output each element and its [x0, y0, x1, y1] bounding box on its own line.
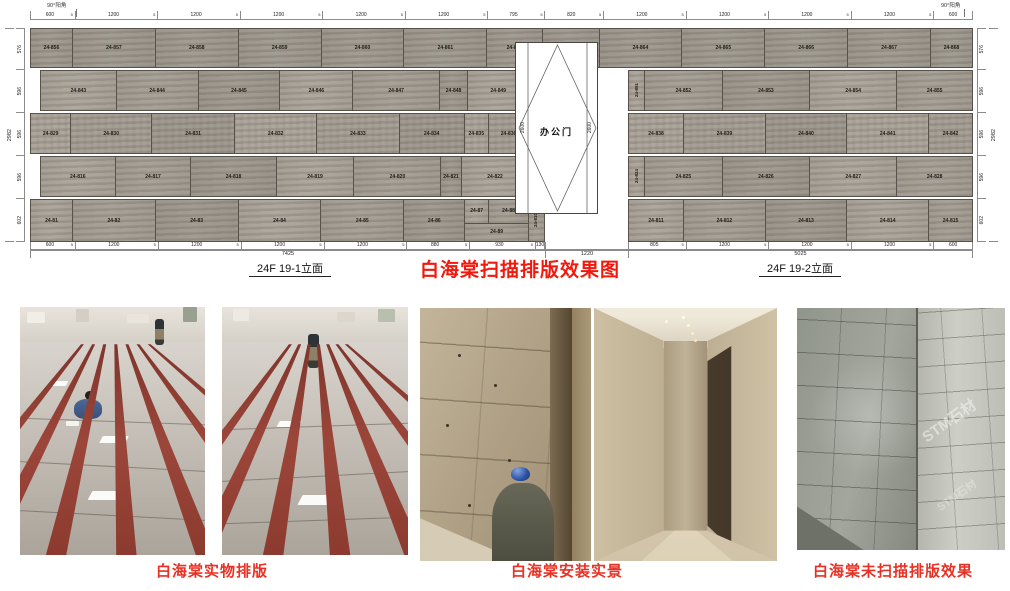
stone-panel: 24-843 [41, 71, 116, 110]
door-label: 办公门 [516, 125, 597, 138]
panel-number: 24-819 [307, 174, 323, 180]
row-height-dimension: 596 [978, 69, 986, 112]
stone-panel: 24-861 [404, 29, 486, 67]
panel-number: 24-838 [648, 131, 664, 137]
panel-number: 24-824 [634, 169, 640, 183]
panel-number: 24-815 [943, 218, 959, 224]
stone-panel: 24-85 [321, 200, 403, 241]
wall-row: 24-81624-81724-81824-81924-82024-82124-8… [30, 156, 973, 197]
polishing-cloth [66, 421, 79, 426]
panel-number: 24-89 [490, 229, 503, 235]
dimension-label: 1200 [157, 11, 234, 19]
stone-panel: 24-841 [847, 114, 928, 153]
photo-factory-layout-1 [20, 307, 205, 555]
panel-number: 24-812 [717, 218, 733, 224]
total-height-value: 2982 [991, 129, 997, 141]
ceiling-lights [682, 316, 685, 319]
panel-number: 24-855 [927, 88, 943, 94]
dimension-label: 1200 [603, 11, 680, 19]
row-height-dimension: 602 [16, 198, 24, 242]
photo-factory-layout-2 [222, 307, 408, 555]
panel-number: 24-842 [943, 131, 959, 137]
elevation-label-right-text: 24F 19-2立面 [759, 263, 841, 277]
stone-panel: 24-860 [322, 29, 404, 67]
stone-panel: 24-814 [847, 200, 928, 241]
panel-number: 24-854 [845, 88, 861, 94]
corner-angle-label-right: 90°阳角 [941, 1, 960, 9]
panel-number: 24-865 [716, 45, 732, 51]
stone-panel: 24-838 [629, 114, 683, 153]
back-wall [664, 341, 708, 531]
dimension-label: 1200 [75, 11, 152, 19]
top-dimension-row: 6005120051200512005120051200579558205120… [30, 11, 973, 20]
page-title: 白海棠扫描排版效果图 [370, 255, 670, 282]
stone-panel: 24-833 [317, 114, 398, 153]
panel-number: 24-846 [309, 88, 325, 94]
stone-panel: 24-842 [929, 114, 972, 153]
elevation-label-right: 24F 19-2立面 [690, 260, 910, 276]
stone-panel: 24-834 [400, 114, 464, 153]
stone-panel: 24-89 [465, 224, 528, 241]
panel-number: 24-864 [633, 45, 649, 51]
stone-panel: 24-83 [156, 200, 238, 241]
stone-panel: 24-847 [353, 71, 438, 110]
page: 90°阳角 90°阳角 6005120051200512005120051200… [0, 0, 1010, 591]
total-height-left: 2982 [5, 28, 14, 242]
panel-number: 24-86 [428, 218, 441, 224]
dimension-label: 1200 [851, 11, 928, 19]
stone-panel: 24-811 [629, 200, 683, 241]
stone-panel: 24-857 [73, 29, 155, 67]
stone-panel: 24-848 [440, 71, 467, 110]
panel-number: 24-841 [880, 131, 896, 137]
panel-number: 24-845 [231, 88, 247, 94]
anchor-holes [458, 354, 461, 357]
office-door: 2600 2600 办公门 [515, 42, 598, 214]
stone-panel: 24-858 [156, 29, 238, 67]
dimension-label: 820 [544, 11, 597, 19]
dimension-label: 795 [487, 11, 538, 19]
stone-panel: 24-840 [766, 114, 847, 153]
panel-number: 24-840 [798, 131, 814, 137]
panel-number: 24-859 [272, 45, 288, 51]
panel-number: 24-835 [469, 131, 485, 137]
panel-number: 24-868 [944, 45, 960, 51]
panel-number: 24-844 [149, 88, 165, 94]
elevation-label-left: 24F 19-1立面 [180, 260, 400, 276]
panel-number: 24-822 [487, 174, 503, 180]
elevation-label-left-text: 24F 19-1立面 [249, 263, 331, 277]
stone-panel: 24-816 [41, 157, 115, 196]
dimension-label: 1200 [405, 11, 482, 19]
panel-number: 24-833 [350, 131, 366, 137]
slab-floor [20, 342, 205, 555]
dimension-label: 1200 [240, 11, 317, 19]
left-dimension-column: 576596596596602 [16, 28, 25, 242]
dimension-label: 600 [30, 11, 69, 19]
panel-number: 24-817 [145, 174, 161, 180]
row-height-dimension: 602 [978, 198, 986, 242]
panel-number: 24-828 [927, 174, 943, 180]
stone-panel: 24-864 [600, 29, 682, 67]
stone-panel: 24-846 [280, 71, 352, 110]
panel-number: 24-831 [185, 131, 201, 137]
stone-panel: 24-830 [71, 114, 151, 153]
photo-unscanned-wall: STM石材 STM石材 [797, 308, 1005, 550]
wall-row: 24-84324-84424-84524-84624-84724-84824-8… [30, 70, 973, 111]
factory-background [20, 307, 205, 347]
panel-number: 24-87 [470, 208, 483, 214]
crate [378, 309, 395, 322]
stone-panel: 24-815 [929, 200, 972, 241]
stone-panel: 24-819 [277, 157, 354, 196]
stone-panel: 24-867 [848, 29, 930, 67]
dimension-label: 1200 [768, 11, 845, 19]
panel-number: 24-821 [443, 174, 459, 180]
stone-panel: 24-821 [441, 157, 460, 196]
stone-panel: 24-86 [404, 200, 464, 241]
stone-panel: 24-865 [682, 29, 764, 67]
panel-number: 24-85 [356, 218, 369, 224]
panel-number: 24-839 [717, 131, 733, 137]
safety-helmet [511, 467, 530, 481]
total-height-value: 2982 [7, 129, 13, 141]
panel-number: 24-856 [44, 45, 60, 51]
panel-number: 24-820 [390, 174, 406, 180]
stone-panel: 24-845 [199, 71, 280, 110]
panel-number: 24-851 [634, 83, 640, 97]
row-height-dimension: 576 [16, 28, 24, 69]
stone-panel: 24-813 [766, 200, 847, 241]
wall-row: 24-8124-8224-8324-8424-8524-8624-8724-88… [30, 199, 973, 242]
photo-installation-corridor [594, 308, 777, 561]
caption-unscanned: 白海棠未扫描排版效果 [743, 560, 1010, 581]
panel-number: 24-843 [71, 88, 87, 94]
stone-panel: 24-828 [897, 157, 972, 196]
elevation-drawing: 24-85624-85724-85824-85924-86024-86124-8… [30, 28, 973, 244]
wall-row: 24-82924-83024-83124-83224-83324-83424-8… [30, 113, 973, 154]
stone-panel: 24-852 [645, 71, 722, 110]
panel-number: 24-813 [798, 218, 814, 224]
wall-row: 24-85624-85724-85824-85924-86024-86124-8… [30, 28, 973, 68]
stone-panel: 24-855 [897, 71, 972, 110]
worker-standing [155, 319, 164, 345]
panel-number: 24-866 [798, 45, 814, 51]
stone-panel: 24-826 [723, 157, 809, 196]
panel-number: 24-834 [424, 131, 440, 137]
panel-number: 24-867 [881, 45, 897, 51]
stone-panel: 24-82 [73, 200, 155, 241]
stone-panel: 24-827 [810, 157, 896, 196]
corner-angle-label-left: 90°阳角 [47, 1, 66, 9]
panel-number: 24-81 [45, 218, 58, 224]
stone-panel: 24-851 [629, 71, 644, 110]
row-height-dimension: 596 [978, 112, 986, 155]
panel-number: 24-829 [43, 131, 59, 137]
stone-panel: 24-868 [931, 29, 972, 67]
panel-number: 24-852 [676, 88, 692, 94]
stone-panel: 24-831 [152, 114, 234, 153]
row-height-dimension: 596 [16, 155, 24, 198]
right-dimension-column: 576596596596602 [977, 28, 986, 242]
dimension-label: 1200 [686, 11, 763, 19]
panel-number: 24-82 [107, 218, 120, 224]
row-height-dimension: 596 [16, 112, 24, 155]
crate [76, 309, 89, 322]
crate [233, 309, 249, 321]
stone-panel: 24-818 [191, 157, 275, 196]
panel-number: 24-847 [388, 88, 404, 94]
panel-number: 24-848 [446, 88, 462, 94]
stone-panel: 24-832 [235, 114, 316, 153]
stone-panel: 24-844 [117, 71, 198, 110]
stone-panel: 24-820 [354, 157, 440, 196]
stone-panel: 24-81 [31, 200, 72, 241]
caption-physical-layout: 白海棠实物排版 [62, 560, 362, 581]
panel-number: 24-814 [880, 218, 896, 224]
stone-panel: 24-859 [239, 29, 321, 67]
panel-number: 24-860 [355, 45, 371, 51]
crate [183, 307, 197, 322]
stone-panel: 24-812 [684, 200, 765, 241]
stone-panel: 24-854 [810, 71, 896, 110]
panel-number: 24-849 [491, 88, 507, 94]
panel-number: 24-84 [273, 218, 286, 224]
panel-number: 24-811 [648, 218, 663, 224]
panel-number: 24-825 [676, 174, 692, 180]
side-wall [572, 308, 591, 561]
stone-panel: 24-839 [684, 114, 765, 153]
panel-number: 24-88 [502, 208, 515, 214]
total-right-wall: 5025 [628, 250, 973, 258]
total-height-right: 2982 [989, 28, 998, 242]
caption-installation: 白海棠安装实景 [417, 560, 717, 581]
stone-panel: 24-856 [31, 29, 72, 67]
panel-number: 24-830 [103, 131, 119, 137]
stone-panel: 24-829 [31, 114, 70, 153]
photo-installation-wall [420, 308, 591, 561]
panel-number: 24-858 [189, 45, 205, 51]
panel-number: 24-827 [845, 174, 861, 180]
panel-number: 24-826 [758, 174, 774, 180]
stone-panel: 24-84 [239, 200, 321, 241]
stone-panel: 24-817 [116, 157, 191, 196]
row-height-dimension: 576 [978, 28, 986, 69]
panel-number: 24-836 [501, 131, 517, 137]
panel-number: 24-816 [70, 174, 86, 180]
panel-number: 24-853 [758, 88, 774, 94]
dimension-label: 600 [933, 11, 972, 19]
panel-number: 24-83 [190, 218, 203, 224]
panel-number: 24-810 [533, 213, 539, 227]
stone-panel: 24-866 [765, 29, 847, 67]
panel-number: 24-832 [268, 131, 284, 137]
stone-panel: 24-824 [629, 157, 644, 196]
crate [337, 312, 355, 322]
stone-panel: 24-87 [465, 200, 488, 223]
worker-jacket [492, 483, 554, 561]
wall-left-plane [797, 308, 918, 550]
crate [27, 312, 45, 323]
crate [127, 314, 149, 323]
row-height-dimension: 596 [16, 69, 24, 112]
row-height-dimension: 596 [978, 155, 986, 198]
panel-number: 24-857 [106, 45, 122, 51]
stone-panel: 24-853 [723, 71, 809, 110]
dimension-label: 1200 [322, 11, 399, 19]
stone-panel: 24-835 [465, 114, 488, 153]
panel-number: 24-818 [226, 174, 242, 180]
stone-panel: 24-825 [645, 157, 722, 196]
panel-number: 24-861 [438, 45, 454, 51]
